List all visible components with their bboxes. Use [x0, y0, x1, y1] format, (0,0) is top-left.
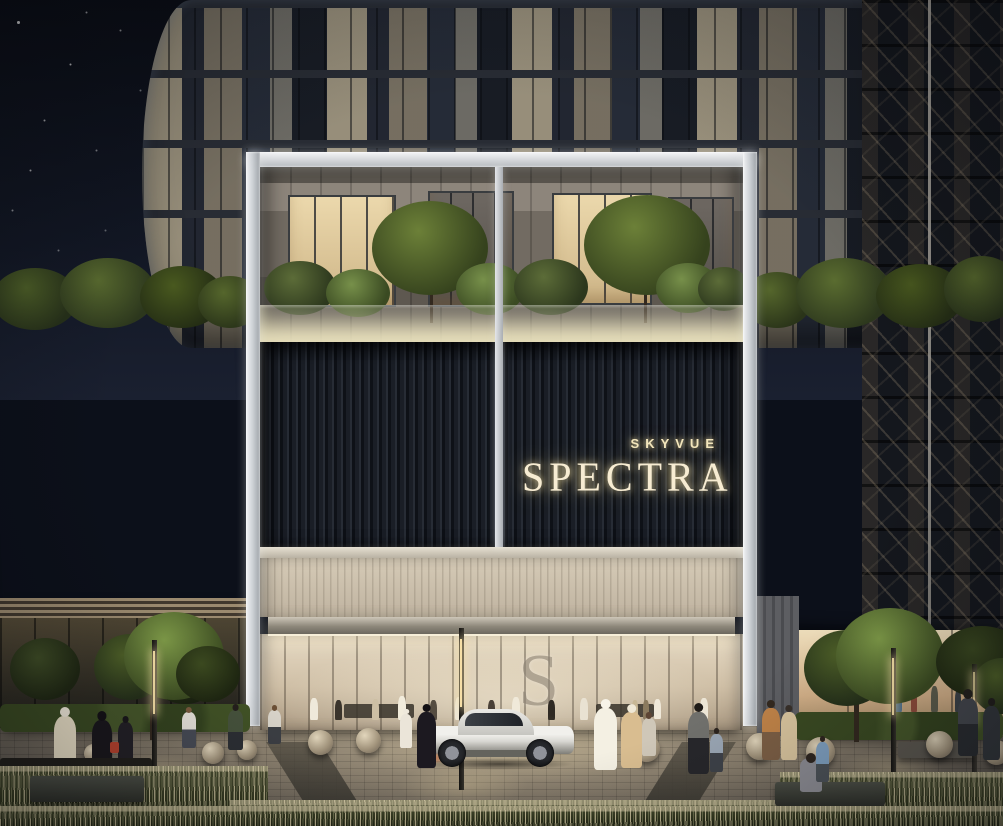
- marble-bench: [775, 782, 885, 806]
- portal-frame-divider: [495, 167, 503, 547]
- street-tree: [836, 608, 944, 704]
- canopy-top-edge: [260, 547, 743, 558]
- person-kandura: [594, 708, 617, 770]
- person-casual: [642, 718, 656, 756]
- portal-frame-left-column: [246, 152, 260, 726]
- lobby-person: [372, 699, 379, 720]
- ornamental-grass: [0, 806, 1003, 826]
- portal-frame-top: [246, 152, 757, 167]
- stone-sphere-bollard: [926, 731, 953, 758]
- striped-soffit: [0, 598, 248, 618]
- stone-sphere-bollard: [202, 742, 224, 764]
- person-child: [816, 742, 829, 782]
- architectural-rendering: SKYVUE SPECTRA S: [0, 0, 1003, 826]
- tree-trunk: [854, 700, 859, 742]
- person-casual: [268, 710, 281, 744]
- entrance-canopy: [268, 617, 735, 636]
- lobby-person: [654, 699, 661, 719]
- mannequin: [931, 686, 938, 712]
- car-rear-wheel: [526, 739, 554, 767]
- indoor-tree: [10, 638, 80, 700]
- person-kandura: [400, 714, 412, 748]
- podium-striped-left: [0, 290, 261, 637]
- person-bisht: [621, 712, 642, 768]
- person-casual: [958, 698, 978, 756]
- person-casual: [228, 710, 243, 750]
- sign-brand-line: SKYVUE: [522, 436, 726, 451]
- white-supercar: [424, 704, 574, 770]
- stone-sphere-bollard: [356, 728, 381, 753]
- lobby-person: [335, 700, 342, 720]
- lobby-person: [310, 698, 318, 720]
- person-casual: [781, 712, 797, 760]
- stars: [0, 0, 1, 1]
- person-casual: [983, 706, 1000, 760]
- car-front-wheel: [438, 739, 466, 767]
- car-windows: [465, 713, 523, 726]
- travertine-wall: [260, 558, 743, 617]
- sign-name-line: SPECTRA: [522, 452, 726, 501]
- person-casual: [762, 708, 780, 760]
- portal-frame-right-column: [743, 152, 757, 726]
- lamp-post: [891, 648, 896, 784]
- street-tree: [176, 646, 240, 702]
- marble-bench: [30, 776, 144, 802]
- red-shopping-bag: [110, 742, 119, 753]
- person-casual: [182, 712, 196, 748]
- building-sign: SKYVUE SPECTRA: [522, 436, 726, 500]
- person-child: [710, 734, 723, 772]
- person-casual: [688, 712, 709, 774]
- person-abaya: [417, 712, 436, 768]
- podium-striped-right: [741, 288, 1003, 643]
- stone-sphere-bollard: [308, 730, 333, 755]
